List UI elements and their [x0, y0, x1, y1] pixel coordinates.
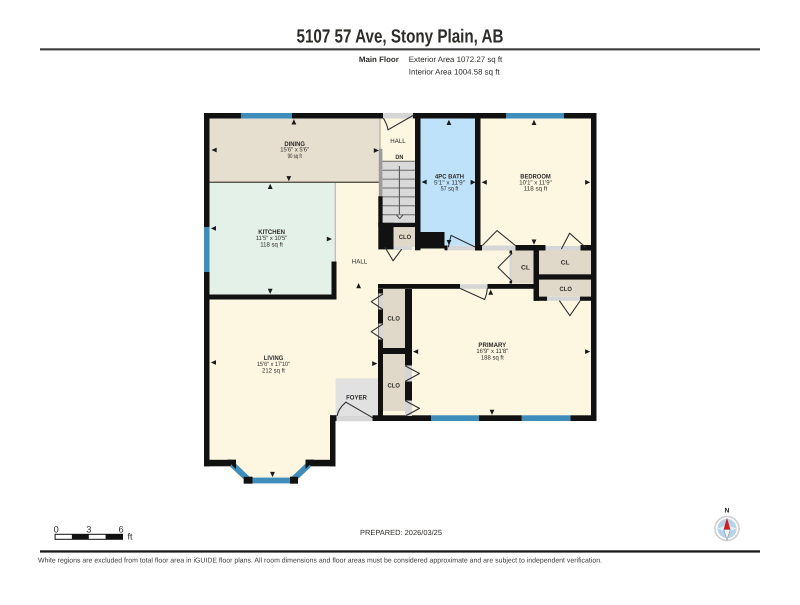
svg-text:0: 0	[54, 525, 59, 535]
svg-text:CLO: CLO	[560, 286, 573, 293]
svg-text:6: 6	[118, 525, 123, 535]
svg-text:90 sq ft: 90 sq ft	[288, 153, 302, 160]
svg-text:CLO: CLO	[388, 382, 401, 389]
svg-text:HALL: HALL	[352, 259, 368, 266]
svg-text:57 sq ft: 57 sq ft	[441, 186, 459, 193]
svg-text:DN: DN	[395, 154, 403, 161]
svg-text:118 sq ft: 118 sq ft	[524, 186, 548, 193]
svg-text:HALL: HALL	[390, 138, 406, 145]
svg-text:Main Floor: Main Floor	[359, 55, 399, 64]
svg-text:Interior Area 1004.58 sq ft: Interior Area 1004.58 sq ft	[409, 68, 501, 77]
svg-text:CL: CL	[561, 259, 570, 266]
svg-text:Exterior Area 1072.27 sq ft: Exterior Area 1072.27 sq ft	[409, 55, 503, 64]
svg-text:CL: CL	[521, 265, 530, 272]
svg-text:118 sq ft: 118 sq ft	[260, 242, 283, 249]
svg-text:188 sq ft: 188 sq ft	[481, 355, 504, 362]
svg-text:212 sq ft: 212 sq ft	[262, 367, 285, 374]
svg-text:5107 57 Ave, Stony Plain, AB: 5107 57 Ave, Stony Plain, AB	[297, 27, 504, 48]
svg-text:3: 3	[86, 525, 91, 535]
svg-text:N: N	[725, 508, 730, 515]
svg-text:White regions are excluded fro: White regions are excluded from total fl…	[38, 556, 602, 564]
svg-text:CLO: CLO	[399, 234, 412, 241]
svg-text:CLO: CLO	[388, 315, 401, 322]
svg-text:FOYER: FOYER	[346, 394, 367, 401]
svg-text:PREPARED: 2026/03/25: PREPARED: 2026/03/25	[360, 528, 442, 537]
svg-text:ft: ft	[128, 531, 134, 541]
